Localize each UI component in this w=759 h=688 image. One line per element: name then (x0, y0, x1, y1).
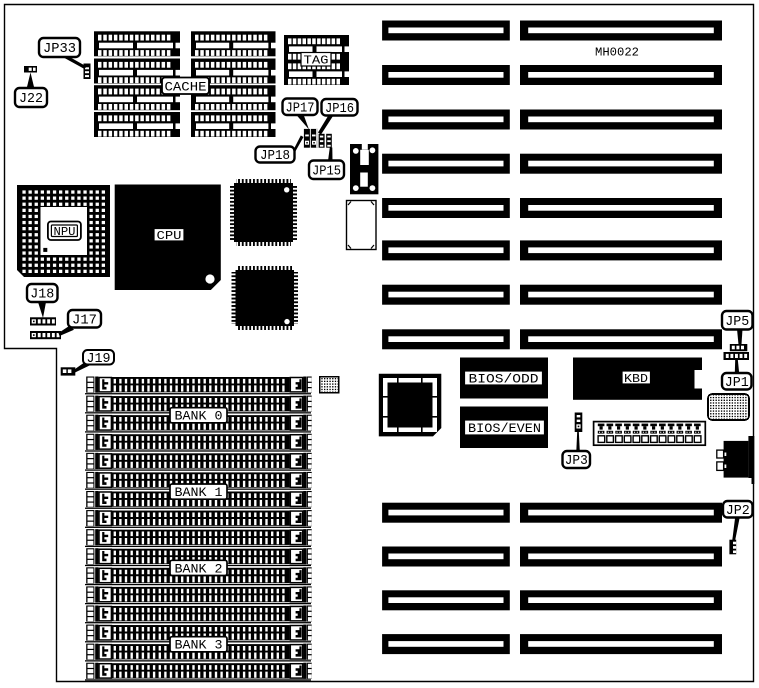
svg-text:TAG: TAG (304, 54, 329, 68)
svg-text:JP5: JP5 (725, 315, 749, 330)
svg-text:JP15: JP15 (312, 164, 341, 179)
svg-text:BANK 1: BANK 1 (175, 485, 223, 500)
svg-text:JP18: JP18 (260, 149, 290, 164)
svg-text:J18: J18 (30, 288, 54, 303)
svg-text:JP33: JP33 (43, 42, 76, 57)
svg-text:J19: J19 (87, 352, 111, 367)
svg-text:JP2: JP2 (726, 504, 750, 519)
svg-text:BANK 0: BANK 0 (175, 409, 223, 424)
svg-text:CPU: CPU (157, 229, 182, 243)
svg-text:JP17: JP17 (286, 101, 315, 116)
svg-text:J22: J22 (19, 92, 43, 107)
svg-text:MH0022: MH0022 (595, 47, 639, 60)
svg-text:BANK 2: BANK 2 (175, 561, 223, 576)
svg-text:JP3: JP3 (565, 454, 588, 469)
svg-text:CACHE: CACHE (165, 79, 207, 94)
svg-text:BIOS/ODD: BIOS/ODD (469, 372, 539, 387)
svg-text:JP1: JP1 (725, 376, 749, 391)
svg-text:BIOS/EVEN: BIOS/EVEN (468, 421, 541, 436)
svg-text:JP16: JP16 (325, 102, 354, 117)
svg-text:BANK 3: BANK 3 (175, 638, 223, 653)
svg-text:J17: J17 (72, 313, 97, 328)
svg-text:KBD: KBD (624, 372, 648, 386)
svg-text:NPU: NPU (54, 225, 76, 239)
